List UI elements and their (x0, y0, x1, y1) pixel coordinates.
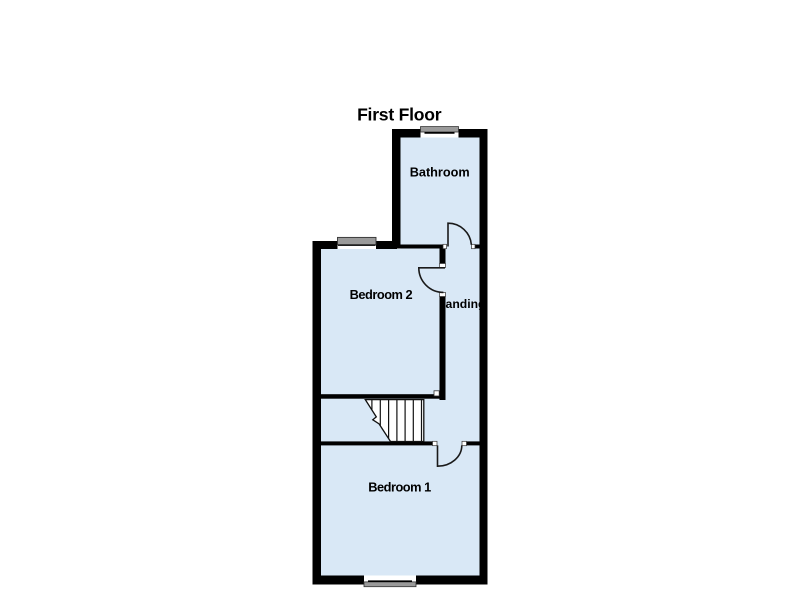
svg-text:Bedroom 2: Bedroom 2 (350, 287, 413, 302)
svg-text:First Floor: First Floor (357, 104, 442, 124)
svg-text:Bedroom 1: Bedroom 1 (368, 479, 431, 494)
svg-text:Bathroom: Bathroom (410, 165, 470, 179)
